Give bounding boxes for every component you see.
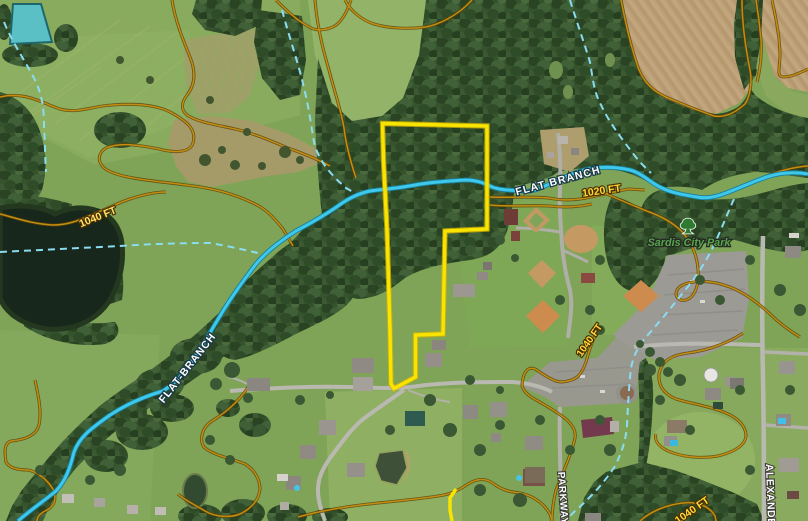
svg-text:Sardis City Park: Sardis City Park: [648, 237, 732, 249]
svg-text:ALEXANDER: ALEXANDER: [763, 464, 777, 521]
